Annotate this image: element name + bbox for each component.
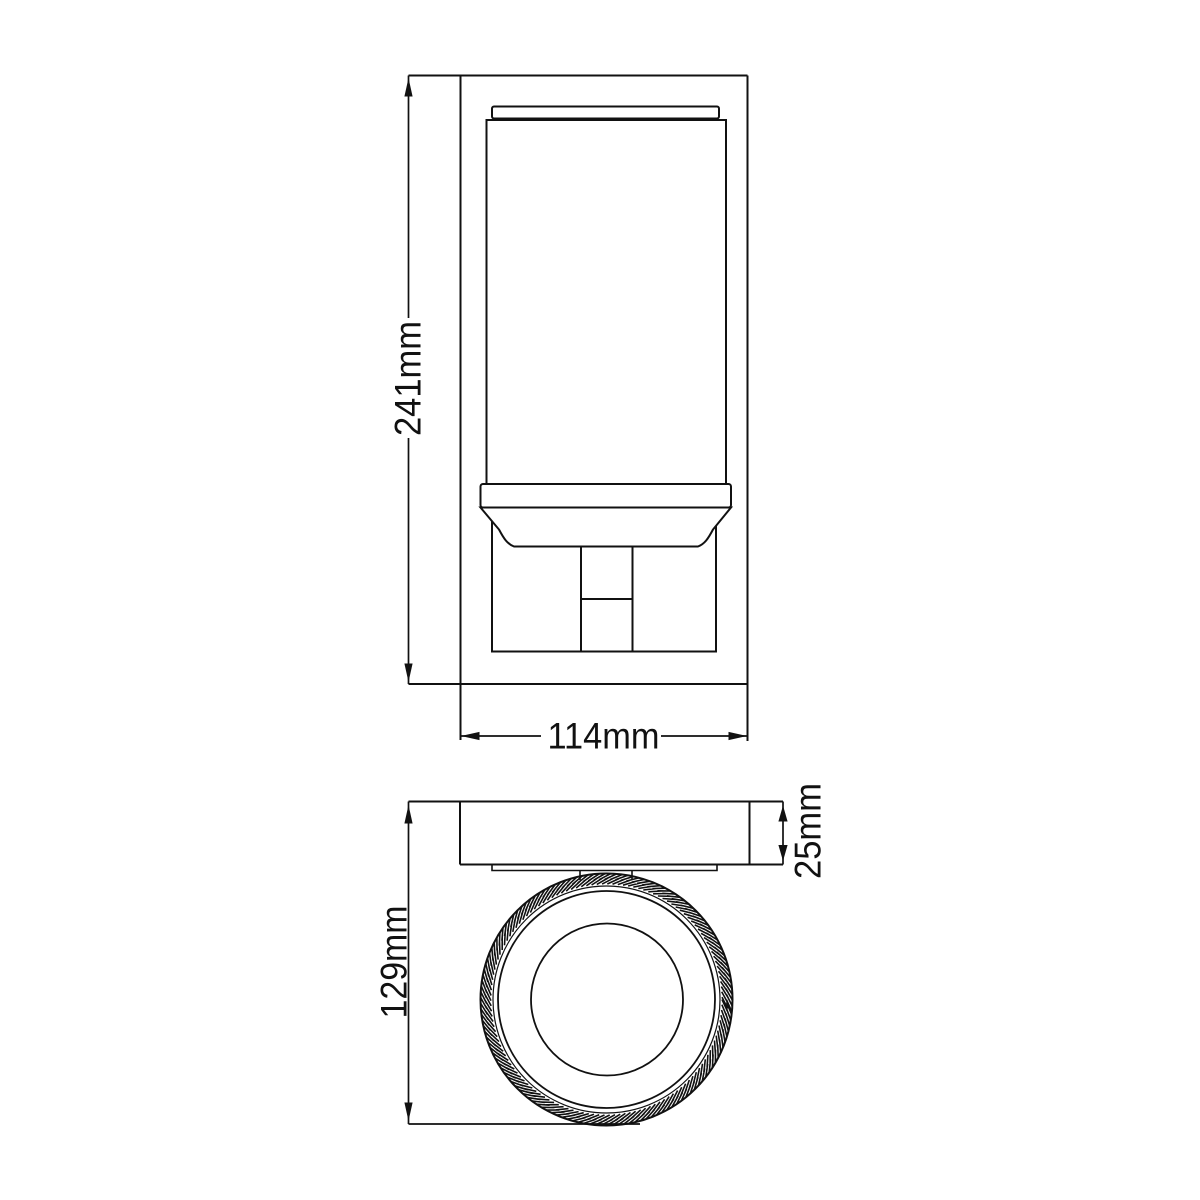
svg-text:241mm: 241mm bbox=[387, 321, 428, 436]
svg-text:25mm: 25mm bbox=[788, 783, 829, 879]
svg-text:129mm: 129mm bbox=[374, 906, 415, 1019]
svg-text:114mm: 114mm bbox=[548, 716, 660, 757]
